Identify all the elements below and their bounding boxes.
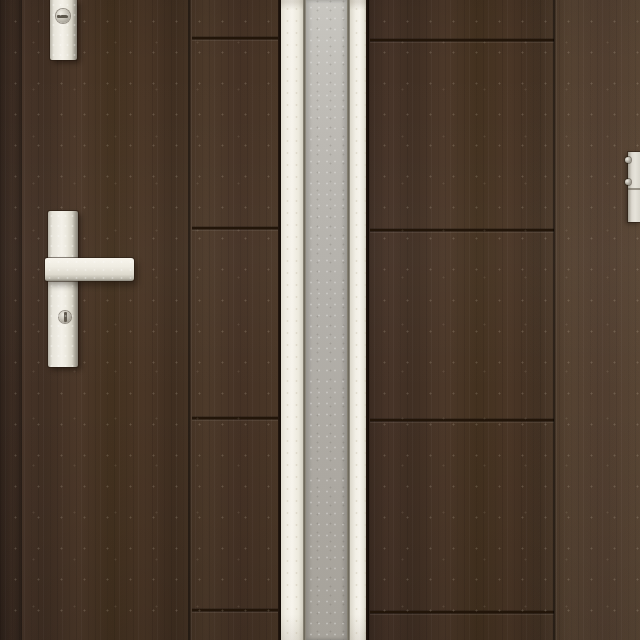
glazing-frame-right-bar [350,0,366,640]
handle-backplate [48,211,78,367]
strike-plate [628,152,640,222]
top-lock-escutcheon [50,0,77,60]
key-slot-icon [57,15,68,18]
left-door-groove-4 [192,608,278,613]
right-door-vertical-groove [553,0,557,640]
right-door-groove-2 [370,228,554,233]
left-door-edge-stile [0,0,22,640]
left-door-leaf [0,0,278,640]
glazing-strip [278,0,369,640]
strike-plate-seam [628,188,640,190]
right-door-groove-3 [370,418,554,423]
door-handle-lever [45,258,134,281]
door-product-photo: Exterior entry door in dark walnut wood-… [0,0,640,640]
thumbturn-slot-icon [64,312,67,322]
left-door-vertical-groove [188,0,192,640]
thumbturn-knob [59,311,71,323]
left-door-groove-3 [192,416,278,421]
strike-plate-screw-bottom [625,179,631,185]
right-door-groove-1 [370,38,554,43]
right-door-leaf [369,0,640,640]
right-door-groove-4 [370,610,554,615]
strike-plate-screw-top [625,157,631,163]
wood-speckle-texture [0,0,278,640]
lock-cylinder-icon [56,9,70,23]
frosted-glass-pane [306,0,347,640]
right-door-light-sheen [520,0,640,640]
left-door-groove-2 [192,226,278,231]
left-door-groove-1 [192,36,278,41]
glazing-frame-left-bar [281,0,303,640]
